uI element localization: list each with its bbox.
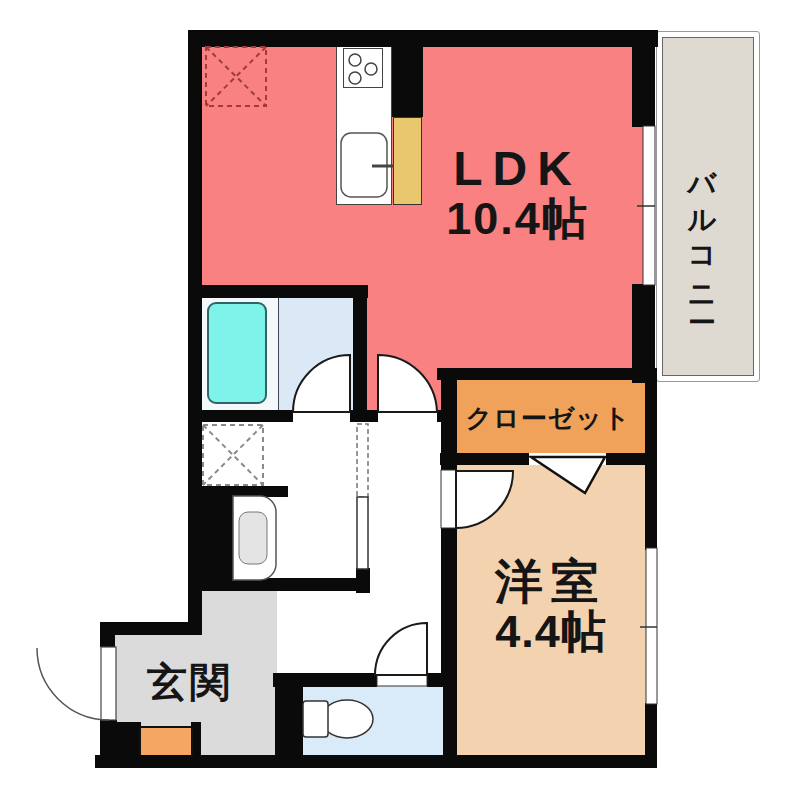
ldk-room-size: 10.4帖: [390, 195, 645, 244]
ldk-door-icon: [378, 355, 437, 412]
entrance-door-leaf: [101, 647, 116, 720]
refrigerator-space-icon: [206, 47, 266, 106]
closet-folding-door-icon: [531, 457, 605, 493]
ldk-room-name: LDK: [390, 143, 645, 195]
toilet-bowl-icon: [321, 700, 373, 738]
western-room-window: [646, 548, 657, 704]
stove-burners-icon: [349, 54, 377, 84]
western-room-size: 4.4帖: [455, 608, 647, 657]
ldk-label: LDK 10.4帖: [390, 143, 645, 243]
floor-plan: LDK 10.4帖 クローゼット 洋室 4.4帖 玄関 バルコニー: [0, 0, 788, 800]
toilet-tank-icon: [303, 701, 328, 737]
washbasin-bowl-icon: [239, 512, 267, 564]
sliding-door-panel: [357, 497, 368, 569]
bathroom-door-icon: [293, 355, 350, 412]
western-room-doorway: [441, 470, 456, 528]
western-room-door-icon: [456, 471, 513, 528]
entrance-label: 玄関: [118, 661, 262, 704]
toilet-door-icon: [375, 623, 427, 675]
western-room-name: 洋室: [455, 556, 647, 608]
entrance-door-swing-icon: [37, 648, 109, 720]
washer-space-icon: [203, 425, 263, 485]
western-room-label: 洋室 4.4帖: [455, 556, 647, 656]
sliding-door-track: [357, 424, 368, 497]
closet-label: クローゼット: [450, 404, 646, 432]
balcony-label: バルコニー: [686, 118, 716, 348]
